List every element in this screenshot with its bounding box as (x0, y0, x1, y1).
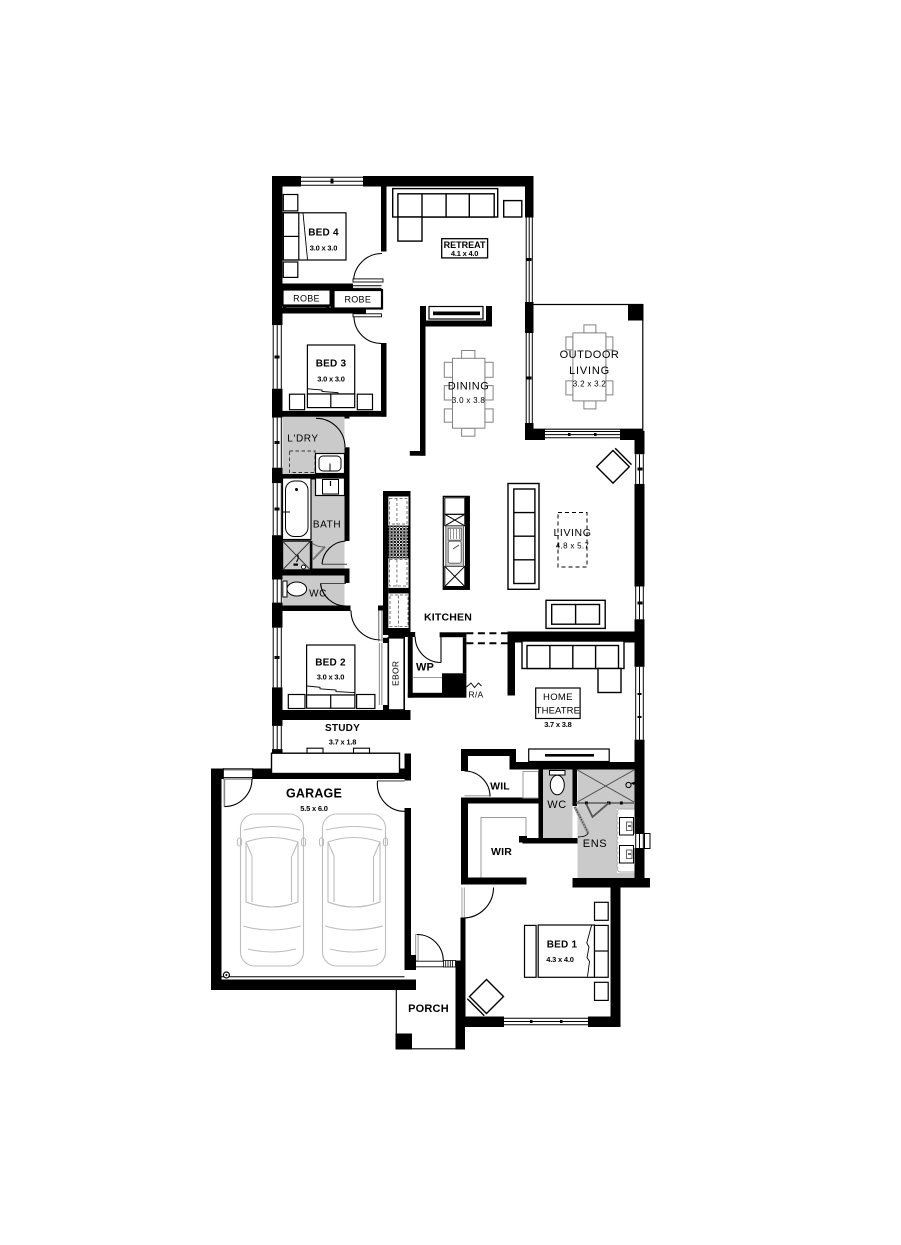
svg-text:WIL: WIL (490, 781, 510, 793)
svg-text:LIVING: LIVING (569, 365, 610, 377)
svg-text:WIR: WIR (491, 846, 512, 858)
svg-text:BED 4: BED 4 (308, 228, 339, 239)
svg-text:EBOR: EBOR (391, 661, 401, 686)
svg-text:KITCHEN: KITCHEN (424, 612, 472, 624)
svg-text:3.0 x 3.8: 3.0 x 3.8 (452, 396, 486, 405)
svg-text:WP: WP (416, 662, 434, 674)
svg-text:STUDY: STUDY (325, 723, 360, 734)
svg-text:BATH: BATH (313, 520, 341, 531)
svg-text:3.0 x 3.0: 3.0 x 3.0 (310, 244, 337, 253)
svg-text:3.7 x 3.8: 3.7 x 3.8 (544, 720, 571, 729)
svg-text:WC: WC (309, 589, 327, 600)
svg-text:ROBE: ROBE (293, 293, 320, 303)
svg-text:BED 3: BED 3 (316, 359, 347, 370)
svg-text:4.1 x 4.0: 4.1 x 4.0 (451, 249, 478, 258)
svg-text:BED 2: BED 2 (315, 658, 346, 669)
svg-text:3.0 x 3.0: 3.0 x 3.0 (317, 375, 344, 384)
svg-text:GARAGE: GARAGE (286, 787, 342, 801)
svg-text:BED 1: BED 1 (547, 940, 578, 951)
svg-text:3.2 x 3.2: 3.2 x 3.2 (573, 380, 607, 389)
svg-text:3.7 x 1.8: 3.7 x 1.8 (329, 738, 356, 747)
svg-text:4.8 x 5.7: 4.8 x 5.7 (556, 542, 590, 551)
svg-text:LIVING: LIVING (553, 527, 591, 539)
svg-text:3.0 x 3.0: 3.0 x 3.0 (317, 673, 344, 682)
svg-text:ROBE: ROBE (344, 294, 371, 304)
svg-text:PORCH: PORCH (408, 1003, 449, 1015)
svg-text:5.5 x 6.0: 5.5 x 6.0 (300, 804, 327, 813)
svg-text:DINING: DINING (448, 381, 490, 393)
svg-text:R/A: R/A (468, 690, 483, 700)
svg-text:HOME: HOME (543, 692, 573, 703)
svg-text:L'DRY: L'DRY (287, 434, 318, 445)
svg-text:WC: WC (547, 799, 567, 811)
svg-text:OUTDOOR: OUTDOOR (560, 349, 620, 361)
svg-text:ENS: ENS (583, 838, 607, 850)
svg-text:THEATRE: THEATRE (536, 706, 580, 717)
svg-text:4.3 x 4.0: 4.3 x 4.0 (546, 955, 573, 964)
